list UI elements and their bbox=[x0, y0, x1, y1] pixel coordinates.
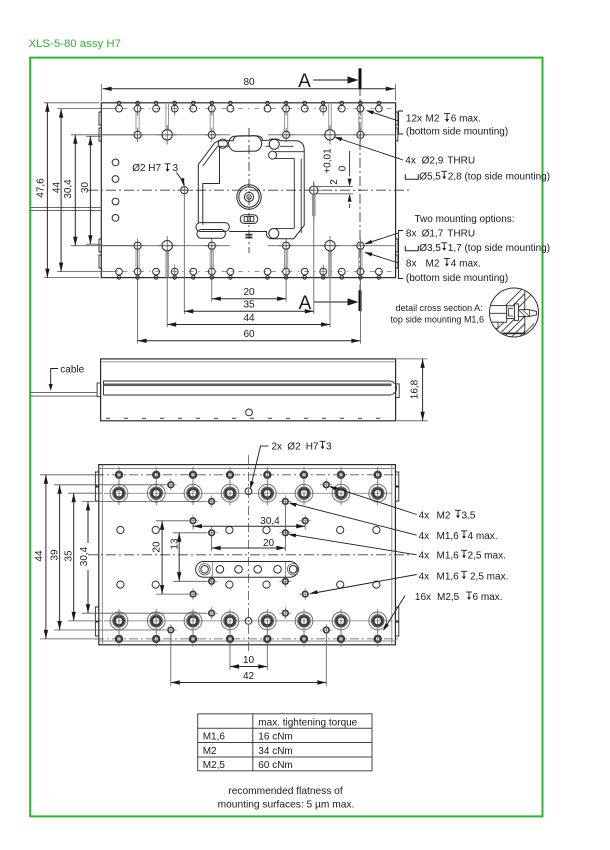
svg-text:+0,01: +0,01 bbox=[323, 148, 334, 174]
svg-text:20: 20 bbox=[152, 541, 163, 553]
svg-text:3: 3 bbox=[173, 163, 179, 174]
svg-text:44: 44 bbox=[243, 313, 255, 324]
svg-text:16x: 16x bbox=[415, 592, 431, 603]
svg-text:8x: 8x bbox=[406, 259, 417, 270]
svg-text:Ø5,5: Ø5,5 bbox=[419, 171, 441, 182]
svg-text:M2: M2 bbox=[203, 746, 217, 757]
svg-text:detail cross section A:: detail cross section A: bbox=[396, 303, 483, 313]
svg-text:3: 3 bbox=[326, 441, 332, 452]
svg-text:M2,5: M2,5 bbox=[437, 592, 460, 603]
svg-text:4 max.: 4 max. bbox=[451, 259, 481, 270]
svg-text:13: 13 bbox=[169, 538, 180, 550]
svg-text:Two mounting options:: Two mounting options: bbox=[415, 214, 515, 225]
svg-text:XLS-5-80 assy H7: XLS-5-80 assy H7 bbox=[29, 38, 121, 50]
svg-text:44: 44 bbox=[51, 182, 62, 194]
svg-text:M1,6: M1,6 bbox=[203, 732, 226, 743]
svg-text:42: 42 bbox=[243, 671, 255, 682]
svg-text:THRU: THRU bbox=[447, 228, 475, 239]
svg-text:M1,6: M1,6 bbox=[437, 571, 460, 582]
svg-text:(bottom side mounting): (bottom side mounting) bbox=[406, 273, 508, 284]
svg-text:max. tightening torque: max. tightening torque bbox=[258, 717, 357, 728]
svg-text:35: 35 bbox=[63, 550, 74, 562]
svg-text:Ø2 H7: Ø2 H7 bbox=[132, 163, 161, 174]
svg-text:A: A bbox=[298, 71, 311, 92]
svg-text:16 cNm: 16 cNm bbox=[258, 732, 292, 743]
svg-text:47,6: 47,6 bbox=[36, 178, 47, 198]
svg-text:34 cNm: 34 cNm bbox=[258, 746, 292, 757]
svg-text:2,5 max.: 2,5 max. bbox=[468, 550, 506, 561]
svg-text:10: 10 bbox=[243, 655, 255, 666]
svg-text:4x: 4x bbox=[419, 531, 430, 542]
svg-text:cable: cable bbox=[60, 365, 84, 376]
svg-text:30,4: 30,4 bbox=[63, 179, 74, 199]
svg-text:M2: M2 bbox=[426, 259, 440, 270]
svg-text:4x: 4x bbox=[419, 510, 430, 521]
svg-text:Ø2,9: Ø2,9 bbox=[422, 155, 444, 166]
svg-text:recommended flatness of: recommended flatness of bbox=[228, 786, 343, 797]
svg-text:60 cNm: 60 cNm bbox=[258, 760, 292, 771]
svg-text:20: 20 bbox=[243, 287, 255, 298]
svg-text:THRU: THRU bbox=[447, 155, 475, 166]
svg-text:0: 0 bbox=[338, 165, 349, 171]
svg-text:2x: 2x bbox=[272, 441, 283, 452]
svg-text:top side mounting M1,6: top side mounting M1,6 bbox=[390, 315, 484, 325]
svg-text:6 max.: 6 max. bbox=[451, 114, 481, 125]
svg-text:20: 20 bbox=[263, 538, 275, 549]
svg-text:Ø2: Ø2 bbox=[287, 441, 301, 452]
svg-text:30,4: 30,4 bbox=[260, 516, 280, 527]
svg-text:4x: 4x bbox=[419, 550, 430, 561]
svg-text:30: 30 bbox=[80, 182, 91, 194]
svg-text:M2,5: M2,5 bbox=[203, 760, 226, 771]
svg-text:4x: 4x bbox=[419, 571, 430, 582]
svg-text:Ø3,5: Ø3,5 bbox=[419, 243, 441, 254]
svg-text:mounting surfaces: 5 µm max.: mounting surfaces: 5 µm max. bbox=[218, 799, 355, 810]
svg-text:12x: 12x bbox=[406, 114, 422, 125]
svg-text:8x: 8x bbox=[406, 228, 417, 239]
svg-text:M2: M2 bbox=[437, 510, 451, 521]
svg-text:80: 80 bbox=[243, 77, 255, 88]
svg-text:4x: 4x bbox=[405, 155, 416, 166]
svg-text:6 max.: 6 max. bbox=[473, 592, 503, 603]
svg-text:3.5: 3.5 bbox=[462, 510, 476, 521]
svg-text:H7: H7 bbox=[306, 441, 319, 452]
svg-text:39: 39 bbox=[49, 549, 60, 561]
svg-text:30,4: 30,4 bbox=[79, 546, 90, 566]
svg-text:4 max.: 4 max. bbox=[468, 531, 498, 542]
svg-text:35: 35 bbox=[243, 300, 255, 311]
svg-text:1,7 (top side mounting): 1,7 (top side mounting) bbox=[448, 243, 550, 254]
svg-text:2: 2 bbox=[329, 179, 340, 185]
svg-text:M1,6: M1,6 bbox=[437, 531, 460, 542]
svg-text:60: 60 bbox=[243, 329, 255, 340]
svg-text:(bottom side mounting): (bottom side mounting) bbox=[406, 126, 508, 137]
svg-text:44: 44 bbox=[34, 550, 45, 562]
svg-text:Ø1,7: Ø1,7 bbox=[422, 228, 444, 239]
svg-text:M2: M2 bbox=[426, 114, 440, 125]
svg-text:2,8 (top side mounting): 2,8 (top side mounting) bbox=[448, 171, 550, 182]
svg-text:M1,6: M1,6 bbox=[437, 550, 460, 561]
svg-text:2,5 max.: 2,5 max. bbox=[470, 571, 508, 582]
svg-text:16,8: 16,8 bbox=[409, 379, 420, 399]
